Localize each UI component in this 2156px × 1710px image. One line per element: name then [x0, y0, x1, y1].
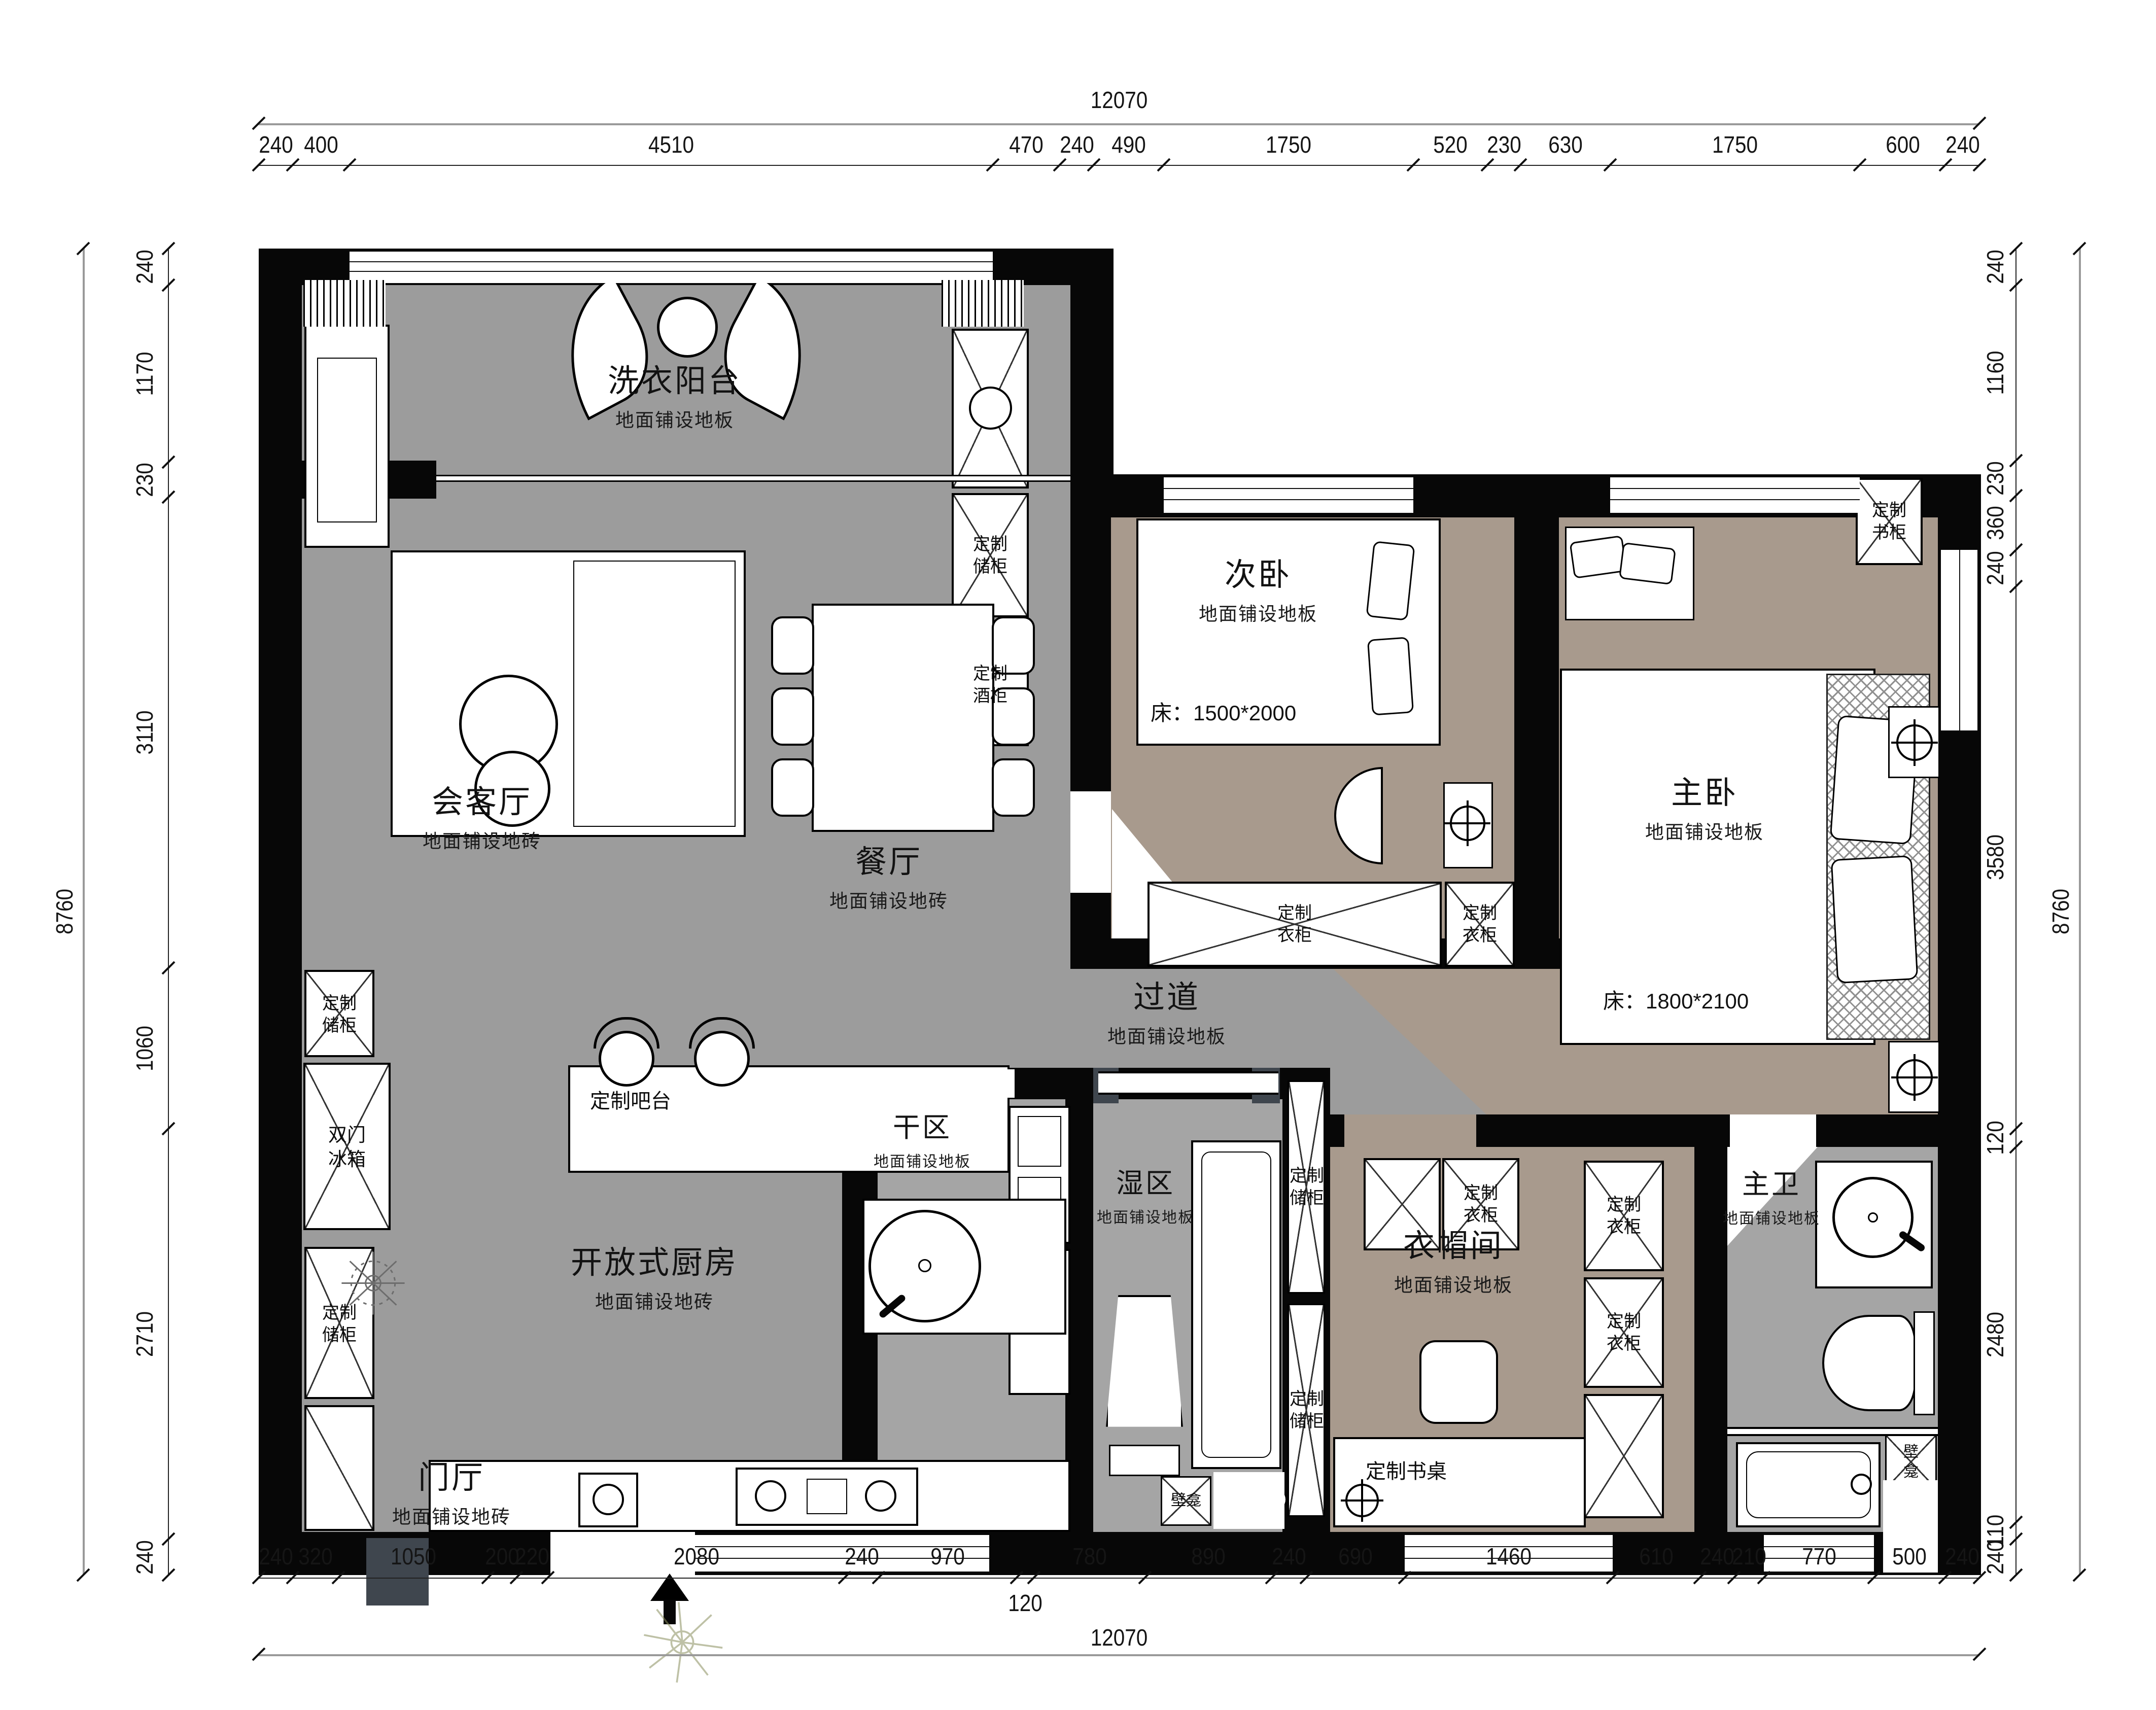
- room-name: 开放式厨房: [571, 1237, 738, 1282]
- room-floor-note: 地面铺设地板: [874, 1149, 971, 1171]
- dim-value: 1050: [391, 1543, 436, 1570]
- label-line: 定制: [322, 994, 357, 1013]
- dim-value: 1060: [131, 1026, 158, 1071]
- label-wardrobe-bed2-large: 定制 衣柜: [1277, 902, 1312, 947]
- room-label-wet: 湿区 地面铺设地板: [1097, 1161, 1194, 1227]
- curtain-balcony: [436, 475, 1070, 482]
- hvac-symbol: [1345, 1484, 1379, 1517]
- label-line: 储柜: [1290, 1412, 1324, 1431]
- room-label-laundry: 洗衣阳台 地面铺设地板: [608, 355, 742, 432]
- label-line: 定制: [1290, 1389, 1324, 1409]
- glass-door-wet: [1098, 1071, 1278, 1095]
- label-corridor-storage-1: 定制 储柜: [1290, 1165, 1324, 1209]
- bed-size-master: 床：1800*2100: [1603, 984, 1749, 1015]
- label-line: 定制: [1464, 1183, 1498, 1203]
- dim-value: 8760: [51, 889, 78, 934]
- dining-chair: [992, 758, 1035, 817]
- dim-value: 120: [1981, 1121, 2009, 1155]
- room-floor-note: 地面铺设地板: [1097, 1205, 1194, 1227]
- dim-value: 2710: [131, 1311, 158, 1357]
- room-name: 过道: [1107, 971, 1226, 1017]
- dim-line-bottom: [259, 1578, 1979, 1579]
- dim-value: 240: [259, 131, 293, 158]
- dim-value: 240: [1981, 250, 2009, 284]
- floor-plan: 洗衣阳台 地面铺设地板 会客厅 地面铺设地砖 餐厅 地面铺设地砖 次卧 地面铺设…: [0, 0, 2156, 1710]
- window-balcony: [350, 252, 993, 283]
- label-line: 衣柜: [1463, 926, 1497, 945]
- bed-size-secondary: 床：1500*2000: [1151, 696, 1296, 727]
- dim-value: 240: [1700, 1543, 1734, 1570]
- label-line: 衣柜: [1277, 926, 1312, 945]
- dim-line-right-overall: [2079, 249, 2081, 1575]
- dim-value: 240: [1981, 551, 2009, 585]
- dim-value: 780: [1072, 1543, 1107, 1570]
- dim-value: 1460: [1486, 1543, 1532, 1570]
- room-name: 次卧: [1199, 549, 1317, 595]
- hvac-symbol: [1896, 1059, 1933, 1096]
- dim-value: 1750: [1712, 131, 1758, 158]
- dim-value: 200: [485, 1543, 519, 1570]
- dining-chair: [771, 758, 814, 817]
- door-gap-master-bath: [1730, 1114, 1816, 1147]
- room-floor-note: 地面铺设地砖: [423, 826, 541, 853]
- room-floor-note: 地面铺设地板: [1199, 599, 1317, 626]
- washing-machine-door: [969, 387, 1012, 430]
- label-bar: 定制吧台: [590, 1088, 671, 1114]
- dim-value: 230: [1487, 131, 1521, 158]
- label-line: 储柜: [1290, 1189, 1324, 1208]
- window-hatch-left: [303, 280, 386, 327]
- window-bedroom2: [1164, 477, 1413, 513]
- room-label-dining: 餐厅 地面铺设地砖: [829, 836, 948, 913]
- pedestal-sink: [1106, 1295, 1183, 1445]
- tub-faucet: [1851, 1474, 1872, 1495]
- dim-value: 690: [1338, 1543, 1373, 1570]
- room-floor-note: 地面铺设地板: [1107, 1021, 1226, 1049]
- bar-stool: [694, 1031, 750, 1087]
- dim-line-left-overall: [83, 249, 85, 1575]
- label-wardrobe-closet-r1: 定制 衣柜: [1607, 1194, 1641, 1238]
- room-name: 干区: [874, 1105, 971, 1145]
- dim-value: 600: [1886, 131, 1920, 158]
- kitchen-sink: [593, 1484, 624, 1515]
- label-wardrobe-closet-r2: 定制 衣柜: [1607, 1310, 1641, 1355]
- label-storage-lower: 定制 储柜: [322, 1302, 357, 1346]
- room-floor-note: 地面铺设地砖: [392, 1502, 511, 1529]
- wall-bedroom-divider: [1514, 517, 1559, 969]
- bathtub-wet-inner: [1201, 1151, 1271, 1458]
- balcony-cabinet-door: [317, 358, 377, 522]
- label-wardrobe-closet-top: 定制 衣柜: [1464, 1182, 1498, 1227]
- stove-burner: [865, 1480, 896, 1512]
- dim-value: 2480: [1981, 1312, 2009, 1357]
- dim-value: 220: [515, 1543, 549, 1570]
- room-label-hallway: 过道 地面铺设地板: [1107, 971, 1226, 1049]
- label-line: 定制: [1872, 501, 1906, 520]
- room-label-kitchen: 开放式厨房 地面铺设地砖: [571, 1237, 738, 1314]
- dim-value: 240: [259, 1543, 293, 1570]
- dim-value: 230: [131, 463, 158, 497]
- dim-value: 240: [1060, 131, 1094, 158]
- bar-stool: [599, 1031, 654, 1087]
- room-name: 会客厅: [423, 776, 541, 822]
- room-floor-note: 地面铺设地板: [1723, 1206, 1820, 1228]
- dim-value: 12070: [1091, 86, 1148, 114]
- dim-value: 320: [298, 1543, 333, 1570]
- room-label-closet: 衣帽间 地面铺设地板: [1394, 1220, 1513, 1297]
- room-name: 门厅: [392, 1452, 511, 1497]
- label-line: 定制: [1607, 1312, 1641, 1331]
- dim-value: 470: [1009, 131, 1044, 158]
- dim-value: 490: [1111, 131, 1146, 158]
- window-hatch-right: [942, 280, 1024, 327]
- dim-value: 890: [1191, 1543, 1226, 1570]
- label-line: 定制: [1463, 903, 1497, 923]
- dim-value: 240: [1272, 1543, 1306, 1570]
- label-line: 壁: [1903, 1444, 1919, 1460]
- room-name: 主卫: [1723, 1162, 1820, 1202]
- label-storage-upper: 定制 储柜: [322, 992, 357, 1037]
- dim-value: 770: [1802, 1543, 1836, 1570]
- label-line: 定制: [1277, 903, 1312, 923]
- dim-line-right: [2015, 249, 2016, 1575]
- dim-value: 970: [930, 1543, 965, 1570]
- dim-value: 400: [304, 131, 338, 158]
- hvac-symbol: [1896, 724, 1933, 761]
- dim-value: 120: [1008, 1589, 1042, 1617]
- desk-chair: [1419, 1340, 1498, 1424]
- dim-value: 4510: [648, 131, 694, 158]
- room-name: 衣帽间: [1394, 1220, 1513, 1266]
- label-line: 定制: [1607, 1195, 1641, 1214]
- tall-cabinet: [304, 1405, 374, 1531]
- dim-value: 1160: [1981, 351, 2009, 395]
- pillow: [1367, 637, 1414, 715]
- dim-value: 240: [1945, 1543, 1979, 1570]
- room-label-master: 主卧 地面铺设地板: [1645, 767, 1764, 844]
- pedestal-base: [1109, 1445, 1180, 1476]
- toilet: [1822, 1315, 1916, 1411]
- label-niche-wet: 壁龛: [1171, 1491, 1201, 1511]
- dim-value: 610: [1639, 1543, 1674, 1570]
- dim-value: 240: [1981, 1540, 2009, 1575]
- sofa-chaise: [573, 561, 736, 827]
- room-label-bedroom2: 次卧 地面铺设地板: [1199, 549, 1317, 626]
- label-line: 衣柜: [1607, 1217, 1641, 1237]
- stove-grill: [807, 1479, 847, 1514]
- dim-value: 210: [1732, 1543, 1766, 1570]
- pillow: [1570, 535, 1627, 579]
- label-line: 定制: [973, 664, 1007, 683]
- wall-bedroom2-left: [1070, 517, 1111, 969]
- room-floor-note: 地面铺设地板: [1394, 1270, 1513, 1297]
- room-label-dry: 干区 地面铺设地板: [874, 1105, 971, 1171]
- label-line: 龛: [1903, 1463, 1919, 1480]
- basin-drain: [1868, 1212, 1878, 1223]
- label-line: 衣柜: [1607, 1334, 1641, 1353]
- drying-drum: [657, 297, 718, 358]
- dim-value: 500: [1892, 1543, 1927, 1570]
- wall-left: [259, 249, 302, 1575]
- room-name: 湿区: [1097, 1161, 1194, 1201]
- room-label-foyer: 门厅 地面铺设地砖: [392, 1452, 511, 1529]
- label-line: 冰箱: [328, 1149, 366, 1170]
- room-floor-note: 地面铺设地板: [608, 405, 742, 432]
- label-wardrobe-bed2-small: 定制 衣柜: [1463, 902, 1497, 947]
- dim-value: 1750: [1266, 131, 1311, 158]
- storage-strip: [1213, 1472, 1284, 1529]
- door-gap-dry: [885, 1069, 1015, 1098]
- label-line: 双门: [328, 1125, 366, 1145]
- label-line: 定制: [973, 535, 1007, 554]
- door-gap-closet: [1344, 1114, 1476, 1147]
- dim-value: 240: [1945, 131, 1980, 158]
- label-line: 定制: [1290, 1166, 1324, 1185]
- pillow: [1619, 542, 1676, 585]
- dim-value: 230: [1981, 461, 2009, 496]
- room-label-living: 会客厅 地面铺设地砖: [423, 776, 541, 853]
- wall-balcony-right: [1070, 249, 1114, 517]
- dining-table: [812, 604, 994, 832]
- label-storage-balcony: 定制 储柜: [973, 533, 1007, 578]
- kitchen-column-door: [1018, 1116, 1061, 1167]
- dim-value: 3110: [131, 710, 158, 754]
- dim-line-left: [168, 249, 169, 1575]
- label-fridge: 双门 冰箱: [328, 1123, 366, 1172]
- room-floor-note: 地面铺设地板: [1645, 817, 1764, 844]
- label-desk: 定制书桌: [1366, 1458, 1447, 1485]
- entry-plant-sketch: [637, 1593, 728, 1692]
- label-wine-cabinet: 定制 酒柜: [973, 662, 1007, 707]
- room-name: 餐厅: [829, 836, 948, 882]
- dim-value: 240: [131, 250, 158, 284]
- label-niche-master: 壁 龛: [1903, 1442, 1919, 1482]
- label-line: 储柜: [322, 1325, 357, 1345]
- dim-line-top: [259, 165, 1979, 166]
- label-line: 储柜: [322, 1016, 357, 1035]
- room-label-master-bath: 主卫 地面铺设地板: [1723, 1162, 1820, 1228]
- label-line: 储柜: [973, 557, 1007, 576]
- dim-value: 2080: [674, 1543, 719, 1570]
- dining-chair: [771, 687, 814, 746]
- bath-divider: [1727, 1427, 1938, 1436]
- door-gap-bedroom2: [1070, 791, 1111, 893]
- dim-line-top-overall: [259, 123, 1979, 125]
- label-line: 酒柜: [973, 686, 1007, 706]
- label-line: 衣柜: [1464, 1206, 1498, 1225]
- room-name: 主卧: [1645, 767, 1764, 813]
- window-master-top: [1610, 477, 1860, 513]
- label-line: 书柜: [1872, 523, 1906, 542]
- dim-value: 240: [845, 1543, 879, 1570]
- dim-value: 3580: [1981, 834, 2009, 880]
- label-corridor-storage-2: 定制 储柜: [1290, 1388, 1324, 1433]
- stove-burner: [755, 1480, 786, 1512]
- room-name: 洗衣阳台: [608, 355, 742, 401]
- basin-drain: [918, 1259, 931, 1272]
- dim-value: 520: [1433, 131, 1468, 158]
- dim-value: 8760: [2047, 889, 2074, 934]
- toilet-tank: [1914, 1311, 1935, 1415]
- wardrobe-closet-r3: [1584, 1394, 1664, 1518]
- dim-line-bottom-overall: [259, 1654, 1979, 1656]
- room-floor-note: 地面铺设地砖: [571, 1286, 738, 1314]
- dim-value: 12070: [1091, 1624, 1148, 1651]
- room-floor-note: 地面铺设地砖: [829, 886, 948, 913]
- dining-chair: [771, 616, 814, 675]
- pillow: [1831, 855, 1919, 984]
- dim-value: 360: [1981, 506, 2009, 540]
- label-line: 定制: [322, 1303, 357, 1322]
- dim-value: 1170: [131, 352, 158, 396]
- hvac-symbol: [1450, 806, 1485, 841]
- window-master-right: [1941, 550, 1977, 730]
- label-book-cabinet: 定制 书柜: [1872, 499, 1906, 544]
- dim-value: 630: [1548, 131, 1583, 158]
- pillow: [1366, 541, 1415, 621]
- dim-value: 240: [131, 1540, 158, 1575]
